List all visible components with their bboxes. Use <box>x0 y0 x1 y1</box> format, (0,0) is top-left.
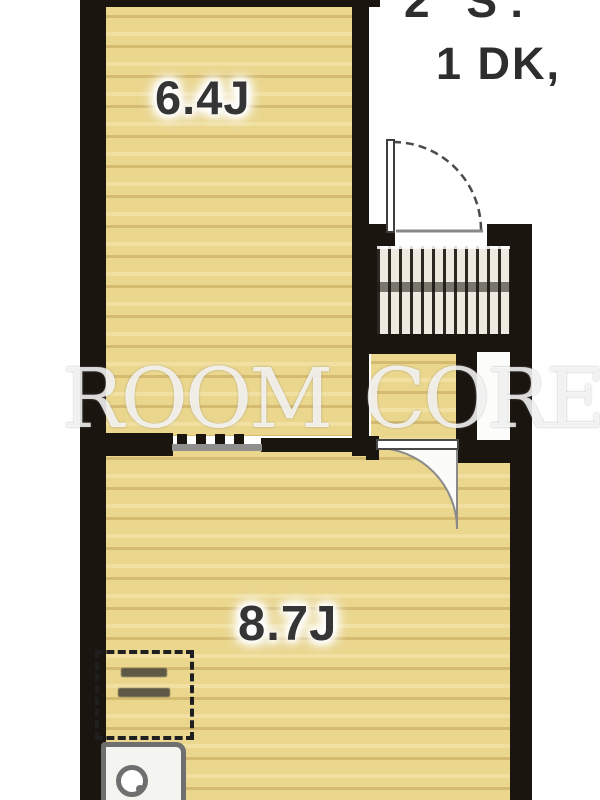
fridge-small-text <box>118 688 170 697</box>
room-door-leaf <box>377 440 458 449</box>
room-door-swing <box>377 448 457 529</box>
refrigerator-space <box>95 650 194 740</box>
fridge-small-text <box>121 668 167 677</box>
sink-burner-icon <box>116 765 148 797</box>
kitchen-sink-counter <box>101 742 186 800</box>
room-label-dining-kitchen: 8.7J <box>238 596 337 652</box>
sink-knob-icon <box>136 785 144 793</box>
entrance-door-arc <box>393 142 481 230</box>
door-symbols <box>0 0 600 800</box>
entrance-door-leaf <box>387 140 394 232</box>
header-clipped-line: 2 S: <box>404 0 536 28</box>
floor-plan-canvas: 6.4J 8.7J 2 S: 1 DK, ROOM CORE <box>0 0 600 800</box>
header-plan-type: 1 DK, <box>436 38 561 90</box>
room-label-western-room: 6.4J <box>155 70 250 125</box>
